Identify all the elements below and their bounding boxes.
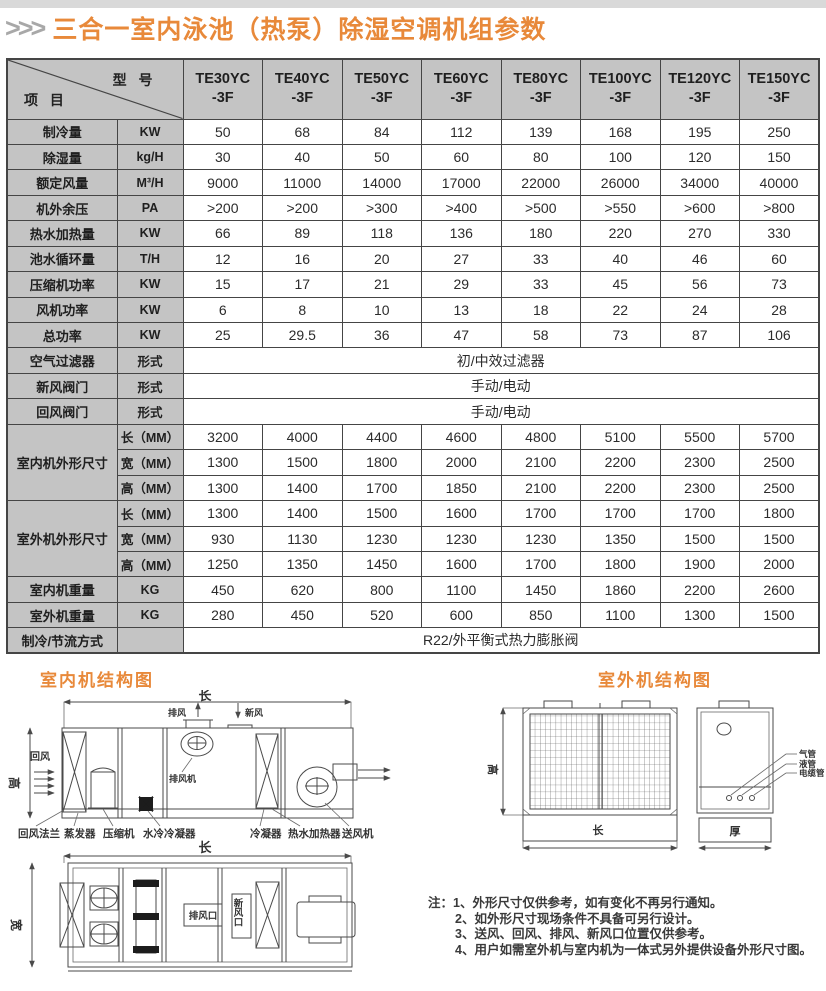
supply-fan-housing-symbol (297, 896, 355, 943)
value-cell: 2500 (740, 450, 820, 475)
value-cell: 195 (660, 119, 740, 144)
value-cell: 10 (342, 297, 422, 322)
value-cell: 2000 (422, 450, 502, 475)
unit-cell: KW (117, 221, 183, 246)
value-cell: 1450 (501, 577, 581, 602)
value-cell: 1700 (501, 551, 581, 576)
value-cell: 2200 (660, 577, 740, 602)
value-cell: 250 (740, 119, 820, 144)
value-cell: >200 (263, 195, 343, 220)
row-group-label-cell: 室外机外形尺寸 (7, 501, 117, 577)
value-cell: 17000 (422, 170, 502, 195)
value-cell: 13 (422, 297, 502, 322)
unit-cell: kg/H (117, 144, 183, 169)
cable-conduit-label: 电缆管 (799, 768, 825, 778)
evaporator-filter-symbol (63, 732, 86, 812)
row-label-cell: 室外机重量 (7, 602, 117, 627)
dimension-label-cell: 宽（MM） (117, 526, 183, 551)
value-cell: 100 (581, 144, 661, 169)
length-dimension: 长 (64, 690, 351, 728)
value-cell: 2200 (581, 450, 661, 475)
dimension-label-cell: 宽（MM） (117, 450, 183, 475)
heat-exchanger-cylinder-symbol (133, 880, 159, 953)
exhaust-fan-symbol: 排风 排风机 (168, 703, 213, 784)
value-cell: >550 (581, 195, 661, 220)
value-cell: 21 (342, 272, 422, 297)
row-label-cell: 制冷量 (7, 119, 117, 144)
value-cell: 15 (183, 272, 263, 297)
compressor-label: 压缩机 (103, 827, 135, 840)
table-row: 室内机外形尺寸长（MM）3200400044004600480051005500… (7, 424, 819, 449)
return-air-label: 回风 (30, 751, 50, 763)
value-cell: 1800 (740, 501, 820, 526)
value-cell: 330 (740, 221, 820, 246)
value-cell: 1500 (342, 501, 422, 526)
table-row: 除湿量kg/H3040506080100120150 (7, 144, 819, 169)
fresh-outlet-box: 新风口 (232, 894, 252, 938)
value-cell: 66 (183, 221, 263, 246)
value-cell: 16 (263, 246, 343, 271)
value-cell: 1800 (342, 450, 422, 475)
value-cell: 1350 (263, 551, 343, 576)
value-cell: 139 (501, 119, 581, 144)
width-dimension: 宽 (9, 863, 32, 967)
model-name: TE30YC (184, 70, 263, 89)
condenser-coil-symbol (256, 882, 279, 948)
value-cell: 2200 (581, 475, 661, 500)
value-cell: 1900 (660, 551, 740, 576)
value-cell: 1250 (183, 551, 263, 576)
gas-pipe-label: 气管 (798, 749, 817, 759)
outdoor-diagram-title: 室外机结构图 (598, 666, 712, 691)
model-name: TE60YC (422, 70, 501, 89)
row-label-cell: 额定风量 (7, 170, 117, 195)
model-name: TE50YC (343, 70, 422, 89)
value-cell: 47 (422, 323, 502, 348)
hot-water-heater-label: 热水加热器 (288, 827, 341, 840)
unit-cell: KW (117, 297, 183, 322)
unit-cell: KG (117, 577, 183, 602)
value-cell: 29.5 (263, 323, 343, 348)
value-cell: 50 (342, 144, 422, 169)
table-row: 高（MM）13001400170018502100220023002500 (7, 475, 819, 500)
component-leader-lines (36, 803, 349, 826)
page-title: 三合一室内泳池（热泵）除湿空调机组参数 (52, 17, 546, 45)
unit-cell (117, 628, 183, 653)
value-cell: 930 (183, 526, 263, 551)
page-header: >>> 三合一室内泳池（热泵）除湿空调机组参数 (5, 15, 546, 46)
unit-body (62, 728, 353, 818)
value-cell: 4600 (422, 424, 502, 449)
row-label-cell: 总功率 (7, 323, 117, 348)
row-label-cell: 回风阀门 (7, 399, 117, 424)
notes-prefix: 注： (428, 896, 453, 910)
value-cell: 20 (342, 246, 422, 271)
table-row: 制冷/节流方式R22/外平衡式热力膨胀阀 (7, 628, 819, 653)
value-cell: 1600 (422, 551, 502, 576)
table-row: 新风阀门形式手动/电动 (7, 373, 819, 398)
value-cell: 60 (422, 144, 502, 169)
filter-symbol (60, 883, 84, 947)
outdoor-unit-diagram: 高 长 气管 液管 电缆管 (410, 695, 826, 865)
value-cell: 18 (501, 297, 581, 322)
value-cell: 25 (183, 323, 263, 348)
unit-cell: T/H (117, 246, 183, 271)
value-cell: 12 (183, 246, 263, 271)
value-cell: 1230 (342, 526, 422, 551)
row-label-cell: 室内机重量 (7, 577, 117, 602)
table-row: 室内机重量KG45062080011001450186022002600 (7, 577, 819, 602)
value-cell: 850 (501, 602, 581, 627)
supply-fan-label: 送风机 (341, 827, 374, 840)
note-line: 注：1、外形尺寸仅供参考，如有变化不再另行通知。 (428, 896, 822, 912)
value-cell: 280 (183, 602, 263, 627)
value-cell: 27 (422, 246, 502, 271)
value-cell: 2000 (740, 551, 820, 576)
value-cell: 112 (422, 119, 502, 144)
unit-cell: KW (117, 272, 183, 297)
value-cell: 150 (740, 144, 820, 169)
dim-height-label: 高 (7, 777, 22, 789)
model-suffix: -3F (422, 89, 501, 108)
model-suffix: -3F (263, 89, 342, 108)
table-row: 风机功率KW68101318222428 (7, 297, 819, 322)
table-row: 池水循环量T/H1216202733404660 (7, 246, 819, 271)
note-item: 3、送风、回风、排风、新风口位置仅供参考。 (455, 927, 822, 943)
unit-cell: M³/H (117, 170, 183, 195)
note-item: 4、用户如需室外机与室内机为一体式另外提供设备外形尺寸图。 (455, 943, 822, 959)
value-cell: 9000 (183, 170, 263, 195)
table-row: 制冷量KW506884112139168195250 (7, 119, 819, 144)
height-dimension: 高 (7, 728, 30, 818)
value-cell: 73 (581, 323, 661, 348)
compressor-symbol (88, 768, 118, 808)
value-cell: 1100 (422, 577, 502, 602)
value-cell: >300 (342, 195, 422, 220)
row-label-cell: 压缩机功率 (7, 272, 117, 297)
value-cell: 40000 (740, 170, 820, 195)
value-cell: 87 (660, 323, 740, 348)
row-label-cell: 风机功率 (7, 297, 117, 322)
value-cell: 1300 (660, 602, 740, 627)
supply-fan-symbol (297, 764, 390, 807)
table-row: 机外余压PA>200>200>300>400>500>550>600>800 (7, 195, 819, 220)
value-cell: >800 (740, 195, 820, 220)
unit-cell: KG (117, 602, 183, 627)
value-cell: >600 (660, 195, 740, 220)
value-cell: 136 (422, 221, 502, 246)
value-cell: 28 (740, 297, 820, 322)
dim-length-label: 长 (198, 690, 212, 703)
value-cell: 220 (581, 221, 661, 246)
row-label-cell: 池水循环量 (7, 246, 117, 271)
dimension-label-cell: 高（MM） (117, 551, 183, 576)
value-cell: 1500 (740, 602, 820, 627)
model-name: TE120YC (661, 70, 740, 89)
value-cell: 1230 (422, 526, 502, 551)
fresh-air-label: 新风 (245, 707, 263, 718)
value-cell: 168 (581, 119, 661, 144)
triple-chevron-icon: >>> (5, 15, 43, 46)
model-header-cell: TE60YC-3F (422, 59, 502, 119)
compressor-pair-symbol (90, 886, 118, 946)
value-cell: 26000 (581, 170, 661, 195)
value-cell: 22 (581, 297, 661, 322)
dim-length-label: 长 (593, 823, 605, 837)
value-cell: 1400 (263, 475, 343, 500)
value-cell: 80 (501, 144, 581, 169)
unit-cell: 形式 (117, 348, 183, 373)
note-item: 1、外形尺寸仅供参考，如有变化不再另行通知。 (453, 896, 722, 910)
water-cooled-condenser-symbol (138, 796, 154, 812)
value-cell: 1500 (740, 526, 820, 551)
table-row: 空气过滤器形式初/中效过滤器 (7, 348, 819, 373)
value-cell: 6 (183, 297, 263, 322)
value-cell: 40 (581, 246, 661, 271)
value-cell: 5500 (660, 424, 740, 449)
value-cell: >200 (183, 195, 263, 220)
model-header-cell: TE100YC-3F (581, 59, 661, 119)
unit-cell: PA (117, 195, 183, 220)
value-cell: >400 (422, 195, 502, 220)
corner-model-label: 型 号 (113, 70, 157, 90)
dim-width-label: 宽 (9, 918, 24, 931)
value-cell: 30 (183, 144, 263, 169)
table-row: 室外机重量KG280450520600850110013001500 (7, 602, 819, 627)
model-header-cell: TE50YC-3F (342, 59, 422, 119)
value-cell: 60 (740, 246, 820, 271)
table-row: 热水加热量KW6689118136180220270330 (7, 221, 819, 246)
value-cell: 118 (342, 221, 422, 246)
unit-cell: KW (117, 323, 183, 348)
row-label-cell: 除湿量 (7, 144, 117, 169)
value-cell: 8 (263, 297, 343, 322)
span-value-cell: 手动/电动 (183, 399, 819, 424)
value-cell: 58 (501, 323, 581, 348)
indoor-unit-side-view-diagram: 长 高 回风 排风 (0, 690, 410, 840)
value-cell: 1230 (501, 526, 581, 551)
value-cell: 2100 (501, 450, 581, 475)
table-row: 额定风量M³/H90001100014000170002200026000340… (7, 170, 819, 195)
value-cell: 1700 (660, 501, 740, 526)
value-cell: 4000 (263, 424, 343, 449)
value-cell: 1850 (422, 475, 502, 500)
dimension-label-cell: 长（MM） (117, 501, 183, 526)
span-value-cell: R22/外平衡式热力膨胀阀 (183, 628, 819, 653)
value-cell: 84 (342, 119, 422, 144)
value-cell: 4400 (342, 424, 422, 449)
value-cell: 46 (660, 246, 740, 271)
dim-height-label: 高 (486, 764, 500, 775)
value-cell: 1300 (183, 450, 263, 475)
value-cell: 2300 (660, 475, 740, 500)
length-dimension: 长 (64, 840, 351, 863)
table-row: 高（MM）12501350145016001700180019002000 (7, 551, 819, 576)
value-cell: 1130 (263, 526, 343, 551)
value-cell: 1800 (581, 551, 661, 576)
exhaust-outlet-label: 排风口 (189, 910, 218, 922)
value-cell: 450 (183, 577, 263, 602)
model-suffix: -3F (661, 89, 740, 108)
value-cell: 24 (660, 297, 740, 322)
row-label-cell: 机外余压 (7, 195, 117, 220)
note-item: 2、如外形尺寸现场条件不具备可另行设计。 (455, 912, 822, 928)
value-cell: >500 (501, 195, 581, 220)
value-cell: 600 (422, 602, 502, 627)
value-cell: 56 (660, 272, 740, 297)
fresh-air-inlet: 新风 (228, 703, 263, 728)
value-cell: 33 (501, 246, 581, 271)
unit-cell: 形式 (117, 373, 183, 398)
model-header-cell: TE30YC-3F (183, 59, 263, 119)
table-row: 总功率KW2529.53647587387106 (7, 323, 819, 348)
row-group-label-cell: 室内机外形尺寸 (7, 424, 117, 500)
return-air-arrows: 回风 (30, 751, 54, 793)
table-row: 压缩机功率KW1517212933455673 (7, 272, 819, 297)
model-header-cell: TE150YC-3F (740, 59, 820, 119)
value-cell: 89 (263, 221, 343, 246)
evaporator-label: 蒸发器 (64, 827, 96, 840)
notes-block: 注：1、外形尺寸仅供参考，如有变化不再另行通知。 2、如外形尺寸现场条件不具备可… (428, 896, 822, 958)
value-cell: 1700 (581, 501, 661, 526)
model-suffix: -3F (581, 89, 660, 108)
model-suffix: -3F (740, 89, 818, 108)
value-cell: 11000 (263, 170, 343, 195)
model-suffix: -3F (502, 89, 581, 108)
table-row: 室外机外形尺寸长（MM）1300140015001600170017001700… (7, 501, 819, 526)
model-header-row: 型 号 项 目 TE30YC-3FTE40YC-3FTE50YC-3FTE60Y… (7, 59, 819, 119)
page-top-strip (0, 0, 826, 8)
model-name: TE40YC (263, 70, 342, 89)
value-cell: 17 (263, 272, 343, 297)
value-cell: 1300 (183, 475, 263, 500)
condenser-label: 冷凝器 (250, 827, 282, 840)
row-label-cell: 制冷/节流方式 (7, 628, 117, 653)
value-cell: 1300 (183, 501, 263, 526)
exhaust-outlet-box: 排风口 (184, 904, 222, 926)
exhaust-fan-label: 排风机 (169, 773, 196, 784)
value-cell: 34000 (660, 170, 740, 195)
span-value-cell: 初/中效过滤器 (183, 348, 819, 373)
value-cell: 450 (263, 602, 343, 627)
value-cell: 1700 (501, 501, 581, 526)
table-row: 回风阀门形式手动/电动 (7, 399, 819, 424)
exhaust-air-label: 排风 (168, 707, 186, 718)
value-cell: 73 (740, 272, 820, 297)
value-cell: 3200 (183, 424, 263, 449)
value-cell: 1600 (422, 501, 502, 526)
spec-table-body: 制冷量KW506884112139168195250除湿量kg/H3040506… (7, 119, 819, 653)
value-cell: 1450 (342, 551, 422, 576)
value-cell: 29 (422, 272, 502, 297)
value-cell: 120 (660, 144, 740, 169)
model-header-cell: TE120YC-3F (660, 59, 740, 119)
value-cell: 68 (263, 119, 343, 144)
corner-cell: 型 号 项 目 (7, 59, 183, 119)
value-cell: 2100 (501, 475, 581, 500)
model-name: TE100YC (581, 70, 660, 89)
value-cell: 2500 (740, 475, 820, 500)
table-row: 宽（MM）9301130123012301230135015001500 (7, 526, 819, 551)
value-cell: 180 (501, 221, 581, 246)
value-cell: 106 (740, 323, 820, 348)
value-cell: 1860 (581, 577, 661, 602)
value-cell: 14000 (342, 170, 422, 195)
model-header-cell: TE40YC-3F (263, 59, 343, 119)
row-label-cell: 新风阀门 (7, 373, 117, 398)
model-name: TE150YC (740, 70, 818, 89)
dim-depth-label: 厚 (730, 825, 741, 838)
model-header-cell: TE80YC-3F (501, 59, 581, 119)
dimension-label-cell: 长（MM） (117, 424, 183, 449)
dim-length-label: 长 (198, 840, 212, 855)
value-cell: 620 (263, 577, 343, 602)
side-view: 气管 液管 电缆管 厚 (697, 701, 825, 848)
value-cell: 22000 (501, 170, 581, 195)
row-label-cell: 空气过滤器 (7, 348, 117, 373)
condenser-coil-symbol (256, 734, 278, 808)
value-cell: 1350 (581, 526, 661, 551)
value-cell: 1700 (342, 475, 422, 500)
value-cell: 50 (183, 119, 263, 144)
value-cell: 5100 (581, 424, 661, 449)
value-cell: 36 (342, 323, 422, 348)
value-cell: 2600 (740, 577, 820, 602)
value-cell: 5700 (740, 424, 820, 449)
indoor-diagram-title: 室内机结构图 (40, 666, 154, 691)
value-cell: 800 (342, 577, 422, 602)
unit-cell: 形式 (117, 399, 183, 424)
component-labels: 回风法兰 蒸发器 压缩机 水冷冷凝器 冷凝器 热水加热器 送风机 (18, 827, 374, 840)
row-label-cell: 热水加热量 (7, 221, 117, 246)
value-cell: 40 (263, 144, 343, 169)
value-cell: 1100 (581, 602, 661, 627)
value-cell: 33 (501, 272, 581, 297)
spec-table: 型 号 项 目 TE30YC-3FTE40YC-3FTE50YC-3FTE60Y… (6, 58, 820, 654)
value-cell: 1500 (660, 526, 740, 551)
corner-item-label: 项 目 (24, 90, 68, 110)
model-suffix: -3F (343, 89, 422, 108)
dimension-label-cell: 高（MM） (117, 475, 183, 500)
return-flange-label: 回风法兰 (18, 827, 60, 840)
value-cell: 4800 (501, 424, 581, 449)
table-row: 宽（MM）13001500180020002100220023002500 (7, 450, 819, 475)
fresh-outlet-label: 新风口 (232, 897, 244, 927)
indoor-unit-top-view-diagram: 长 宽 排风口 新风口 (0, 840, 410, 990)
unit-cell: KW (117, 119, 183, 144)
model-suffix: -3F (184, 89, 263, 108)
span-value-cell: 手动/电动 (183, 373, 819, 398)
value-cell: 2300 (660, 450, 740, 475)
water-cooled-condenser-label: 水冷冷凝器 (142, 827, 196, 840)
value-cell: 1500 (263, 450, 343, 475)
value-cell: 1400 (263, 501, 343, 526)
value-cell: 520 (342, 602, 422, 627)
model-name: TE80YC (502, 70, 581, 89)
value-cell: 45 (581, 272, 661, 297)
front-view: 高 长 (486, 701, 677, 848)
value-cell: 270 (660, 221, 740, 246)
